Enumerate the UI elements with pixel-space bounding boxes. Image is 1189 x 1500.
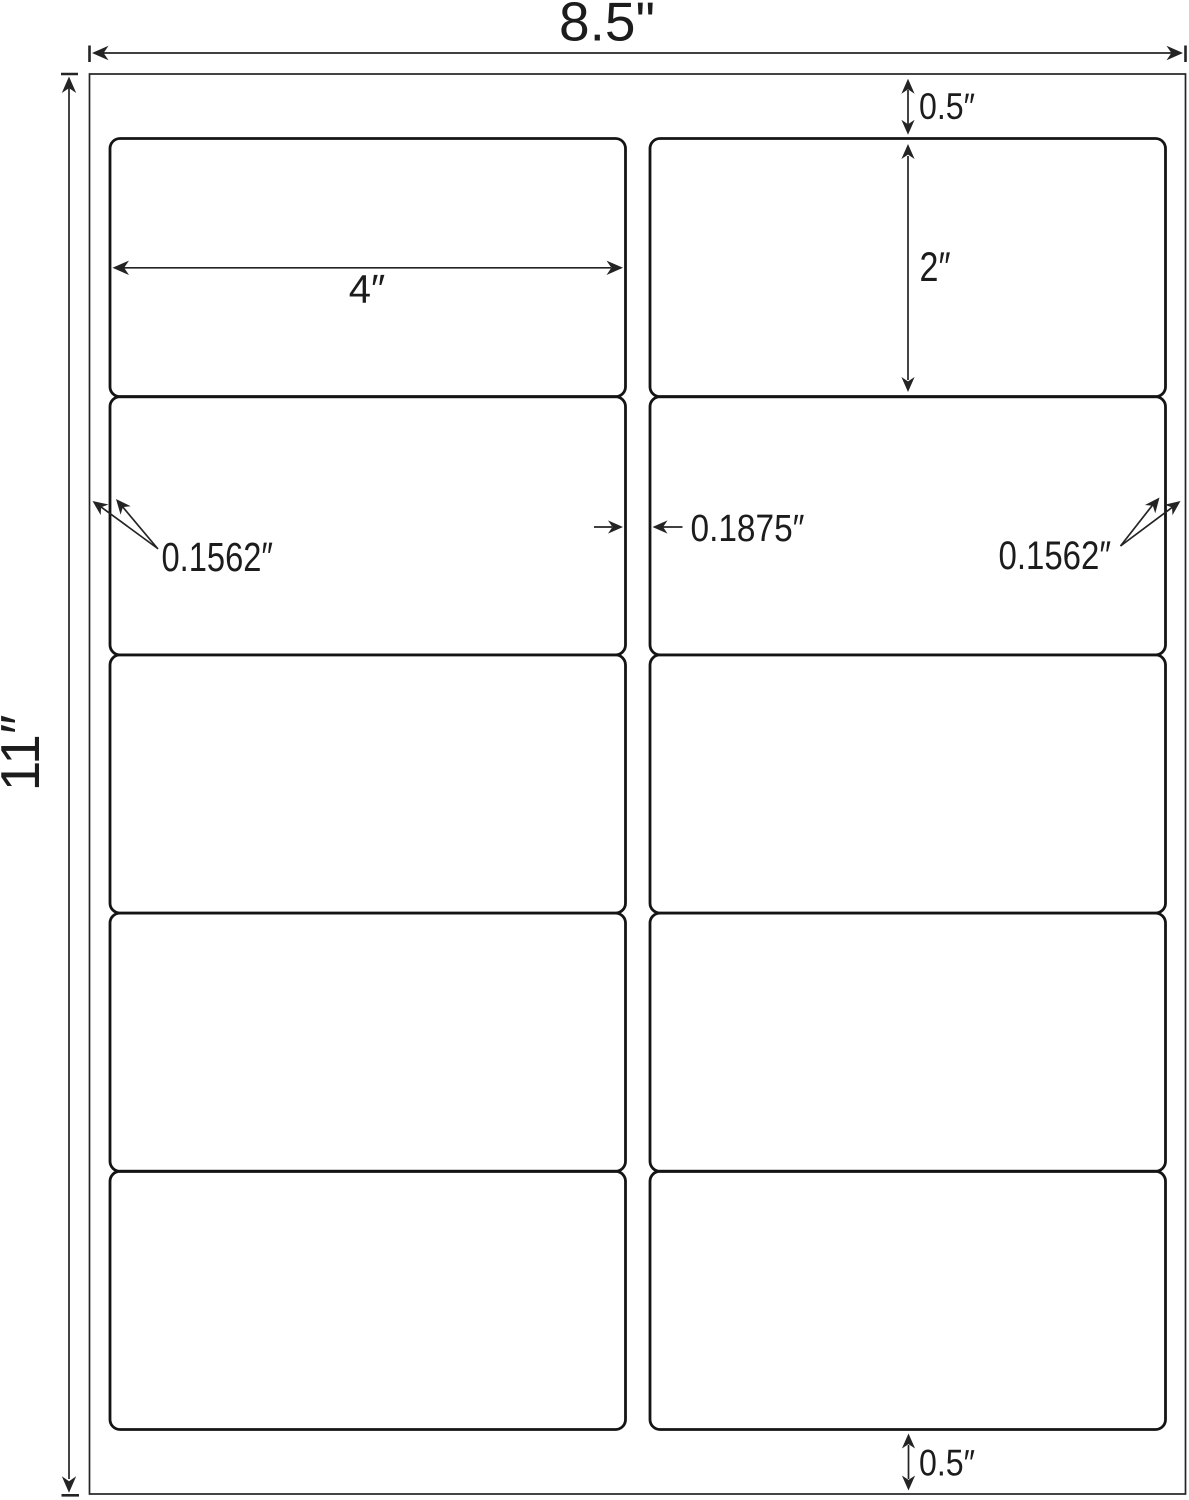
svg-text:8.5": 8.5" bbox=[559, 0, 655, 53]
svg-text:0.1875″: 0.1875″ bbox=[691, 508, 805, 550]
svg-text:0.5″: 0.5″ bbox=[919, 1443, 975, 1484]
svg-text:0.1562″: 0.1562″ bbox=[162, 534, 274, 580]
svg-text:0.1562″: 0.1562″ bbox=[999, 534, 1112, 578]
svg-text:11″: 11″ bbox=[0, 715, 51, 792]
svg-text:0.5″: 0.5″ bbox=[919, 86, 975, 127]
svg-text:2″: 2″ bbox=[920, 243, 951, 290]
svg-text:4″: 4″ bbox=[349, 268, 385, 312]
